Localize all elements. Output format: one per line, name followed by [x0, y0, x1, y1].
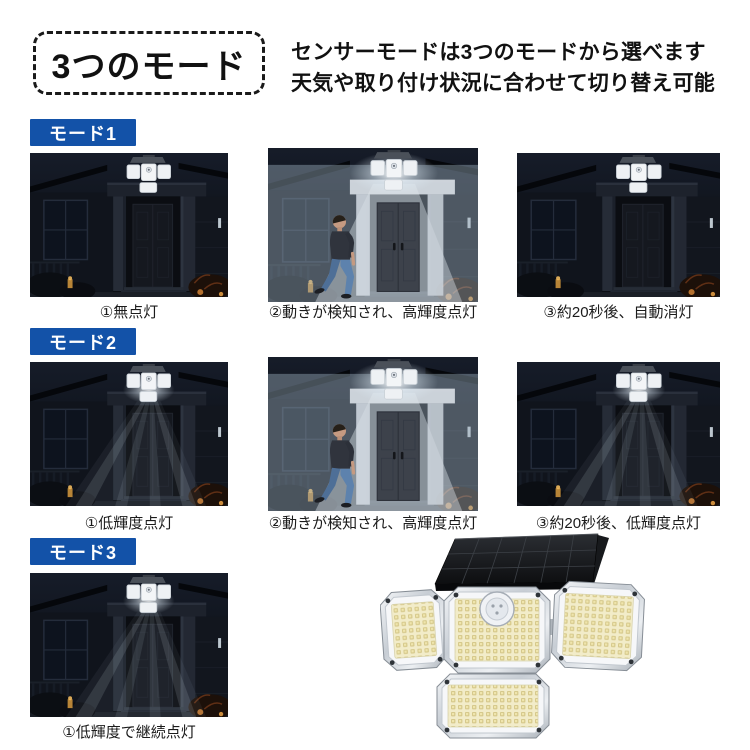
led-panel-left — [380, 589, 449, 671]
photo-mode2-motion-bright — [268, 357, 478, 511]
photo-mode3-continuous-dim — [30, 573, 228, 717]
mode1-label: モード1 — [30, 119, 136, 146]
three-modes-badge: 3つのモード — [33, 31, 265, 95]
photo-mode1-auto-off — [517, 153, 720, 297]
mode3-label: モード3 — [30, 538, 136, 565]
caption-mode1-2: ②動きが検知され、高輝度点灯 — [268, 301, 478, 321]
pir-sensor-icon — [480, 592, 514, 626]
photo-mode1-motion-bright — [268, 148, 478, 302]
caption-mode1-3: ③約20秒後、自動消灯 — [517, 301, 720, 321]
led-panel-right — [551, 581, 645, 672]
badge-label: 3つのモード — [52, 39, 247, 88]
led-panel-bottom — [437, 674, 549, 738]
photo-mode2-dim-after — [517, 362, 720, 506]
mode2-label: モード2 — [30, 328, 136, 355]
product-infographic-page: 3つのモード センサーモードは3つのモードから選べます 天気や取り付け状況に合わ… — [0, 0, 750, 750]
header-line-2: 天気や取り付け状況に合わせて切り替え可能 — [291, 67, 715, 97]
caption-mode2-1: ①低輝度点灯 — [30, 512, 228, 532]
photo-mode2-dim — [30, 362, 228, 506]
product-image-solar-sensor-light — [380, 529, 646, 750]
caption-mode3-1: ①低輝度で継続点灯 — [30, 721, 228, 741]
caption-mode1-1: ①無点灯 — [30, 301, 228, 321]
header-line-1: センサーモードは3つのモードから選べます — [291, 36, 706, 66]
led-panel-center — [444, 587, 550, 673]
photo-mode1-off — [30, 153, 228, 297]
